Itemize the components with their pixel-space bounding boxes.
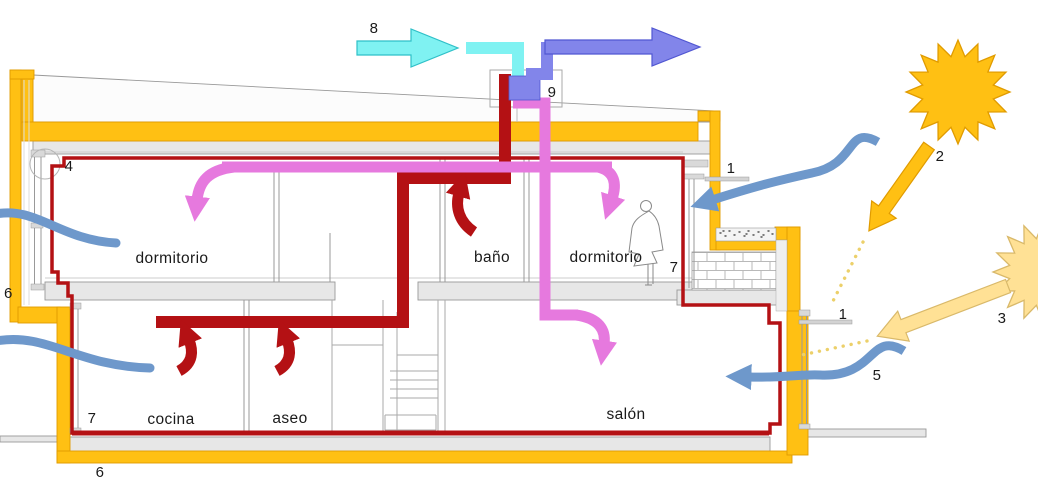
callout-9: 9	[548, 84, 557, 101]
callout-3: 3	[998, 310, 1007, 327]
callout-6-bottom: 6	[96, 464, 105, 481]
sun-low-icon	[993, 222, 1038, 322]
house-cross-section-diagram: dormitorio baño dormitorio cocina aseo s…	[0, 0, 1038, 502]
insulation-left-step	[18, 307, 60, 323]
insulation-floor-band	[57, 451, 792, 463]
room-label-dormitorio-left: dormitorio	[136, 250, 209, 267]
room-label-salon: salón	[606, 406, 645, 423]
room-label-cocina: cocina	[147, 411, 194, 428]
terrace-edge	[776, 240, 787, 311]
exterior-ground-left	[0, 436, 57, 442]
insulation-right-wall-lower	[787, 311, 808, 455]
exhaust-arrow-cocina	[179, 340, 192, 371]
extract-air-arrow	[545, 28, 700, 66]
air-handling-top	[357, 28, 700, 100]
callout-5: 5	[873, 367, 882, 384]
callout-4: 4	[65, 158, 74, 175]
exhaust-arrow-bano	[458, 193, 474, 232]
exterior-ground-right	[800, 429, 926, 437]
ground-slab	[68, 437, 770, 452]
insulation-planter-base	[716, 240, 778, 250]
terrace-slab	[677, 290, 790, 305]
supply-arrow-dormitorio-right	[598, 167, 614, 199]
insulation-roof-band	[22, 122, 698, 141]
callout-6-left: 6	[4, 285, 13, 302]
section-drawing: dormitorio baño dormitorio cocina aseo s…	[0, 0, 1038, 502]
sun-ray-arrow-high	[857, 137, 942, 239]
person-head	[641, 201, 652, 212]
room-label-dormitorio-right: dormitorio	[570, 249, 643, 266]
exhaust-arrow-aseo	[277, 340, 290, 371]
callout-7-lower: 7	[88, 410, 97, 427]
insulation-left-wall-lower	[57, 307, 70, 463]
insulation-parapet-cap-left	[10, 70, 34, 79]
solar-elements	[797, 40, 1038, 356]
callout-1-lower: 1	[839, 306, 848, 323]
callout-2: 2	[936, 148, 945, 165]
supply-arrow-dormitorio-left	[197, 167, 234, 200]
sun-high-icon	[906, 40, 1010, 144]
person-figure	[629, 201, 663, 286]
wind-arrow-dormitorio-right	[712, 137, 878, 200]
room-label-aseo: aseo	[272, 410, 307, 427]
callout-1-upper: 1	[727, 160, 736, 177]
sun-ray-arrow-low	[872, 271, 1014, 351]
insulation-right-wall-upper	[787, 227, 800, 311]
callout-7-upper: 7	[670, 259, 679, 276]
mid-slab-left	[45, 282, 335, 300]
brick-wall	[692, 252, 776, 290]
callout-8: 8	[370, 20, 379, 37]
room-label-bano: baño	[474, 249, 510, 266]
wind-arrow-cocina	[0, 339, 150, 368]
supply-arrow-salon	[576, 315, 604, 344]
sun-shade-shelf-upper	[705, 177, 749, 181]
roof-deck	[33, 75, 716, 122]
